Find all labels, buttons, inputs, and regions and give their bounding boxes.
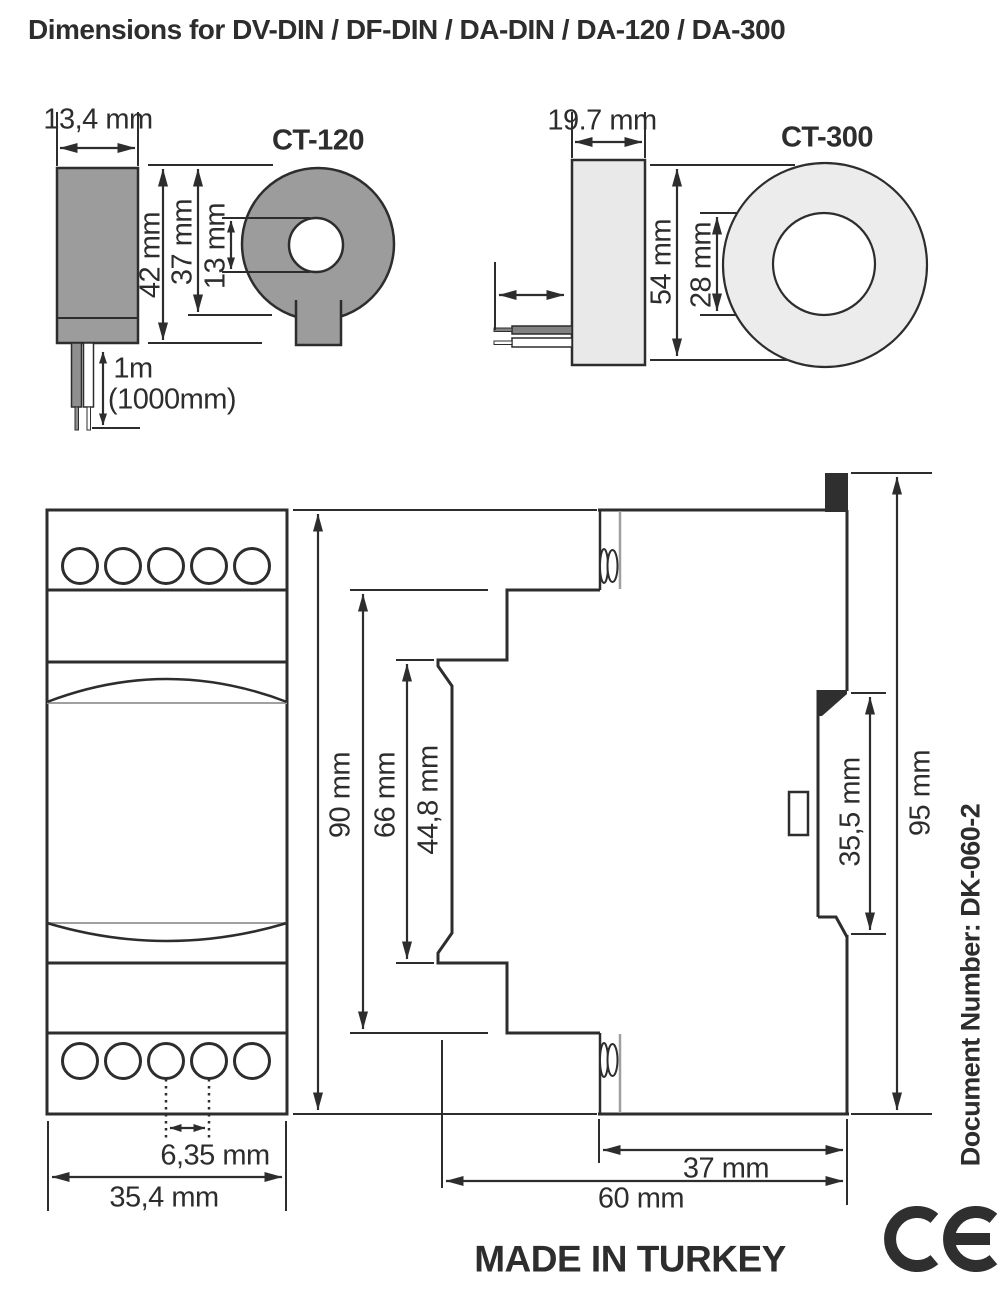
- module-total-height-label: 95 mm: [907, 750, 936, 836]
- ct120-wires: [72, 343, 94, 430]
- ct300-name: CT-300: [781, 124, 873, 153]
- module-top-terminals: [63, 549, 270, 584]
- ct300-hole: [773, 213, 875, 315]
- module-front-view: [47, 510, 287, 1114]
- ct120-hole-label: 13 mm: [202, 203, 231, 289]
- module-label-area-label: 44,8 mm: [415, 745, 444, 854]
- module-side-view: [438, 473, 849, 1114]
- drawing-canvas: [0, 0, 999, 1289]
- ct300-cable-arrow: [495, 262, 564, 330]
- module-height-label: 90 mm: [327, 752, 356, 838]
- module-terminal-span-label: 66 mm: [372, 752, 401, 838]
- dimension-drawing-page: Dimensions for DV-DIN / DF-DIN / DA-DIN …: [0, 0, 999, 1289]
- ct120-cable-mm-label: (1000mm): [108, 386, 236, 415]
- ct300-wires: [494, 326, 572, 347]
- module-din-slot-label: 35,5 mm: [837, 757, 866, 866]
- ct300-height-label: 54 mm: [648, 219, 677, 305]
- module-depth-label: 60 mm: [598, 1185, 684, 1214]
- ct120-name: CT-120: [272, 127, 364, 156]
- ct300-hole-label: 28 mm: [688, 222, 717, 308]
- ct300-side-view: [494, 160, 645, 365]
- ct120-hole: [289, 218, 343, 272]
- page-title: Dimensions for DV-DIN / DF-DIN / DA-DIN …: [28, 14, 785, 46]
- side-terminal-block-bottom: [600, 1033, 620, 1114]
- made-in-label: MADE IN TURKEY: [474, 1241, 786, 1278]
- module-width-label: 35,4 mm: [109, 1184, 218, 1213]
- ct120-ring: [242, 168, 394, 345]
- module-bottom-terminals: [63, 1044, 270, 1079]
- document-number-label: Document Number: DK-060-2: [958, 804, 985, 1167]
- ct120-cable-label: 1m: [113, 355, 152, 384]
- ct300-ring: [723, 163, 927, 367]
- ct120-width-label: 13,4 mm: [43, 106, 152, 135]
- din-clip-top: [825, 473, 848, 512]
- ce-mark-icon: [890, 1212, 993, 1266]
- ct300-width-label: 19.7 mm: [547, 107, 656, 136]
- module-rail-width-label: 37 mm: [683, 1155, 769, 1184]
- din-clip-wedge: [818, 690, 847, 716]
- side-terminal-block-top: [600, 510, 620, 590]
- din-latch-hole: [789, 792, 808, 835]
- module-pitch-label: 6,35 mm: [160, 1142, 269, 1171]
- ct120-height-label: 42 mm: [137, 212, 166, 298]
- ct120-core-height-label: 37 mm: [169, 199, 198, 285]
